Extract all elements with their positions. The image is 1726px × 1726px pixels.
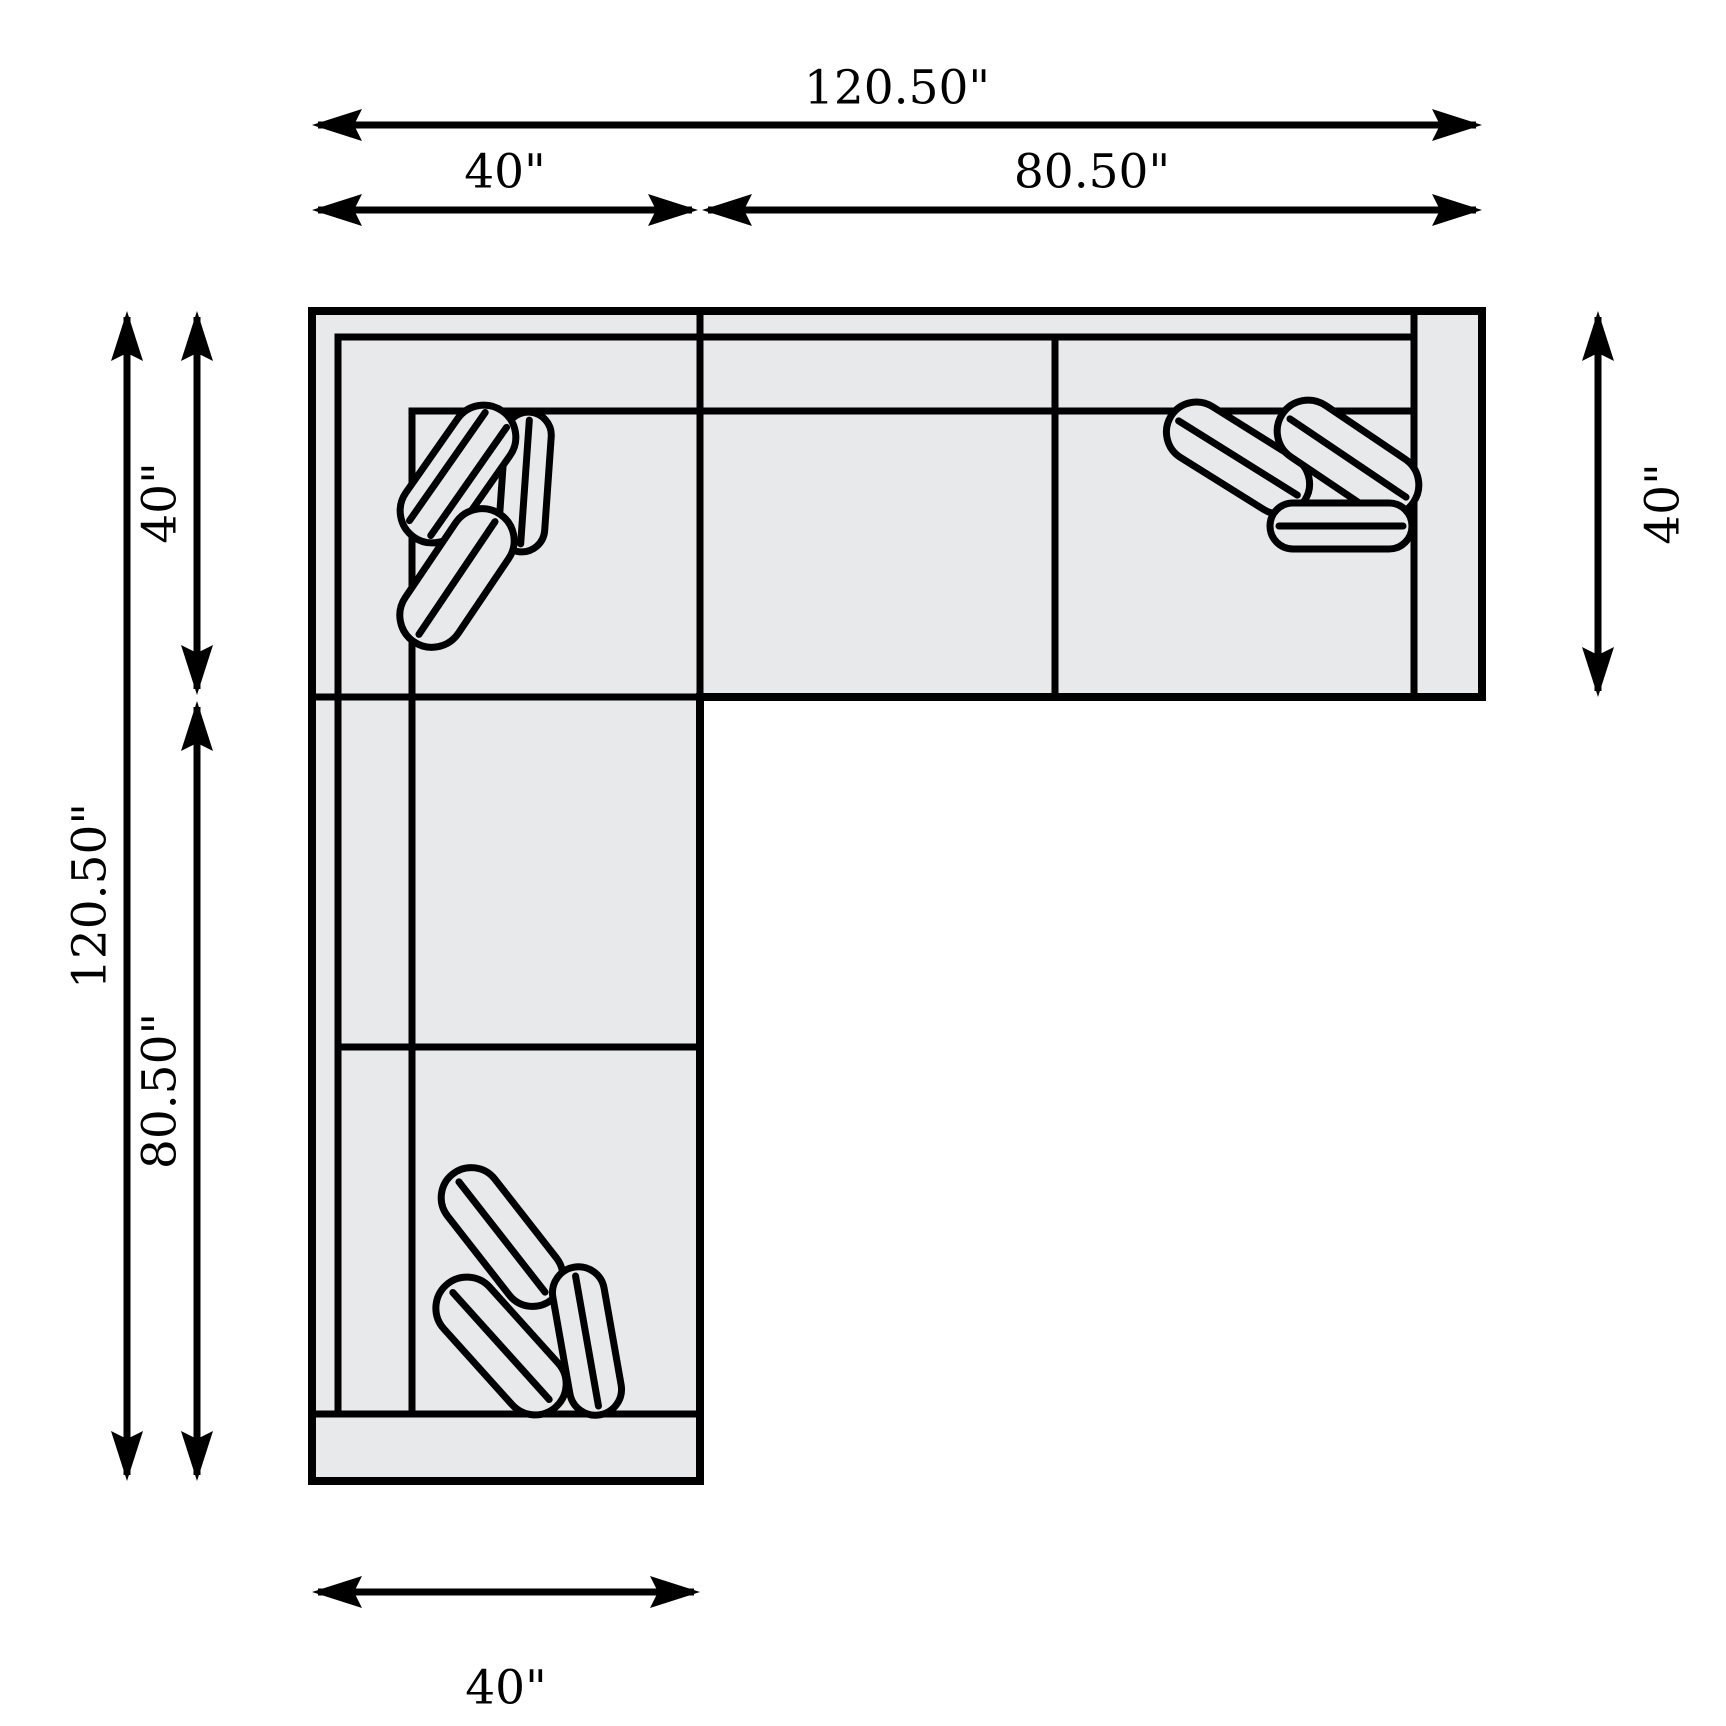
dim-bottom: 40"	[312, 1576, 700, 1716]
dim-right-side: 40"	[1582, 311, 1691, 697]
dimension-drawing-canvas: 120.50" 40" 80.50" 120.50" 4	[0, 0, 1726, 1726]
dim-label-left-upper: 40"	[133, 462, 188, 543]
dim-label-top-left: 40"	[464, 145, 545, 200]
dim-label-left-total: 120.50"	[63, 803, 118, 989]
dim-top-left: 40"	[312, 145, 698, 227]
sectional-sofa-diagram: 120.50" 40" 80.50" 120.50" 4	[0, 0, 1726, 1726]
dim-top-total: 120.50"	[312, 61, 1482, 142]
dim-label-top-total: 120.50"	[804, 61, 990, 116]
dim-label-left-lower: 80.50"	[133, 1013, 188, 1169]
pillow	[1270, 503, 1412, 549]
dim-top-right: 80.50"	[702, 145, 1482, 227]
dim-left-lower: 80.50"	[133, 701, 214, 1481]
dim-left-upper: 40"	[133, 311, 214, 695]
dim-label-right-side: 40"	[1636, 463, 1691, 544]
dim-left-total: 120.50"	[63, 311, 144, 1481]
dim-label-top-right: 80.50"	[1014, 145, 1170, 200]
dim-label-bottom: 40"	[465, 1661, 546, 1716]
